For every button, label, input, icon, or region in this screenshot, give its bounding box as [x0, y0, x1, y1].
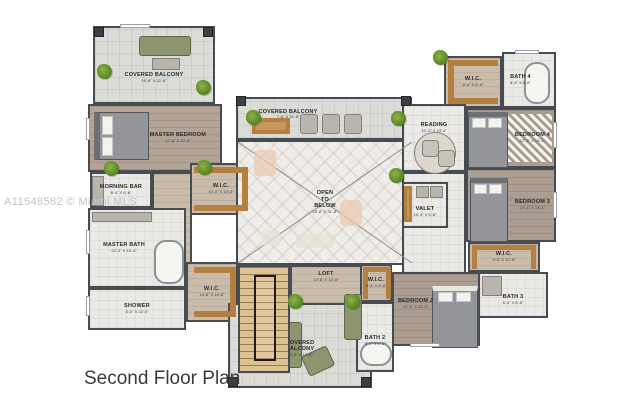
furniture-below: [296, 234, 334, 248]
room-dims: 10'-4" X 13'-4": [208, 190, 233, 195]
shower-stall: [482, 276, 502, 296]
room-dims: 14'-4" X 13'-4": [398, 305, 433, 310]
bath-vanity: [92, 212, 152, 222]
bathtub: [154, 240, 184, 284]
valet-drawer: [416, 186, 429, 198]
plant: [345, 294, 360, 309]
balcony-post: [203, 27, 213, 37]
balcony-chair: [344, 114, 362, 134]
window: [410, 343, 440, 347]
room-dims: 12'-4" X 13'-4": [515, 139, 550, 144]
room-dims: 12'-8" X 13'-8": [313, 278, 338, 283]
sofa: [139, 36, 191, 56]
furniture-below: [340, 200, 362, 226]
pillow: [474, 184, 487, 194]
valet-cabinet: [404, 186, 412, 222]
room-dims: 8'-4" X 6'-8": [510, 81, 531, 86]
reading-chair: [422, 140, 439, 157]
plant: [196, 80, 211, 95]
plant: [389, 168, 404, 183]
room-dims: 5'-4" X 6'-8": [366, 284, 387, 289]
balcony-post: [361, 377, 371, 387]
room-dims: 22'-4" X 15'-4": [103, 249, 145, 254]
coffee-table: [152, 58, 180, 70]
furniture-below: [254, 150, 276, 176]
room-wic-4: W.I.C. 8'-4" X 6'-8": [444, 56, 502, 108]
window: [120, 24, 150, 28]
room-open-to-below: OPEN TO BELOW 18'-8" X 31'-8": [236, 140, 414, 265]
room-dims: 18'-8" X 31'-8": [312, 210, 337, 215]
window: [86, 230, 90, 254]
room-wic-loft: W.I.C. 5'-4" X 6'-8": [360, 264, 392, 302]
mls-watermark: A11548582 © Miami MLS: [4, 196, 137, 208]
balcony-post: [401, 96, 411, 106]
balcony-post: [236, 96, 246, 106]
room-wic-hall: W.I.C. 14'-8" X 10'-8": [186, 262, 238, 322]
room-dims: 16'-8" X 22'-8": [125, 79, 184, 84]
plant: [97, 64, 112, 79]
room-dims: 10'-4" X 13'-4": [421, 129, 448, 134]
plan-title: Second Floor Plan: [84, 368, 240, 390]
pillow: [489, 184, 502, 194]
window: [86, 118, 90, 140]
staircase: [238, 265, 290, 373]
window: [553, 122, 557, 148]
balcony-chair: [322, 114, 340, 134]
room-label: OPEN TO BELOW: [312, 190, 337, 210]
pillow: [102, 137, 113, 156]
room-dims: 8'-4" X 6'-8": [365, 342, 386, 347]
reading-chair: [438, 150, 455, 167]
room-wic-3: W.I.C. 5'-4" X 10'-8": [468, 242, 540, 272]
room-dims: 14'-8" X 10'-8": [199, 293, 224, 298]
room-dims: 17'-8" X 22'-8": [150, 139, 206, 144]
furniture-below: [262, 230, 280, 246]
plant: [246, 110, 261, 125]
room-dims: 12'-4" X 13'-4": [515, 206, 550, 211]
pillow: [438, 292, 453, 302]
balcony-post: [94, 27, 104, 37]
window: [515, 50, 539, 54]
plant: [197, 160, 212, 175]
plant: [391, 111, 406, 126]
room-dims: 8'-0" X 22'-0": [124, 310, 150, 315]
room-dims: 5'-4" X 10'-8": [492, 258, 515, 263]
room-dims: 8'-4" X 6'-8": [100, 191, 142, 196]
pillow: [456, 292, 471, 302]
plant: [433, 50, 448, 65]
room-shower: SHOWER 8'-0" X 22'-0": [88, 288, 186, 330]
room-dims: 8'-4" X 6'-8": [503, 301, 524, 306]
pillow: [102, 116, 113, 135]
plant: [104, 161, 119, 176]
stair-railing: [254, 275, 276, 361]
room-dims: 7'-8" X 31'-8": [259, 115, 318, 120]
pillow: [472, 118, 486, 128]
window: [553, 192, 557, 218]
pillow: [488, 118, 502, 128]
plant: [288, 294, 303, 309]
window: [86, 296, 90, 316]
room-dims: 10'-4" X 6'-8": [413, 213, 436, 218]
valet-drawer: [430, 186, 443, 198]
floor-plan: COVERED BALCONY 16'-8" X 22'-8" MASTER B…: [0, 0, 640, 414]
room-dims: 8'-4" X 6'-8": [463, 83, 484, 88]
